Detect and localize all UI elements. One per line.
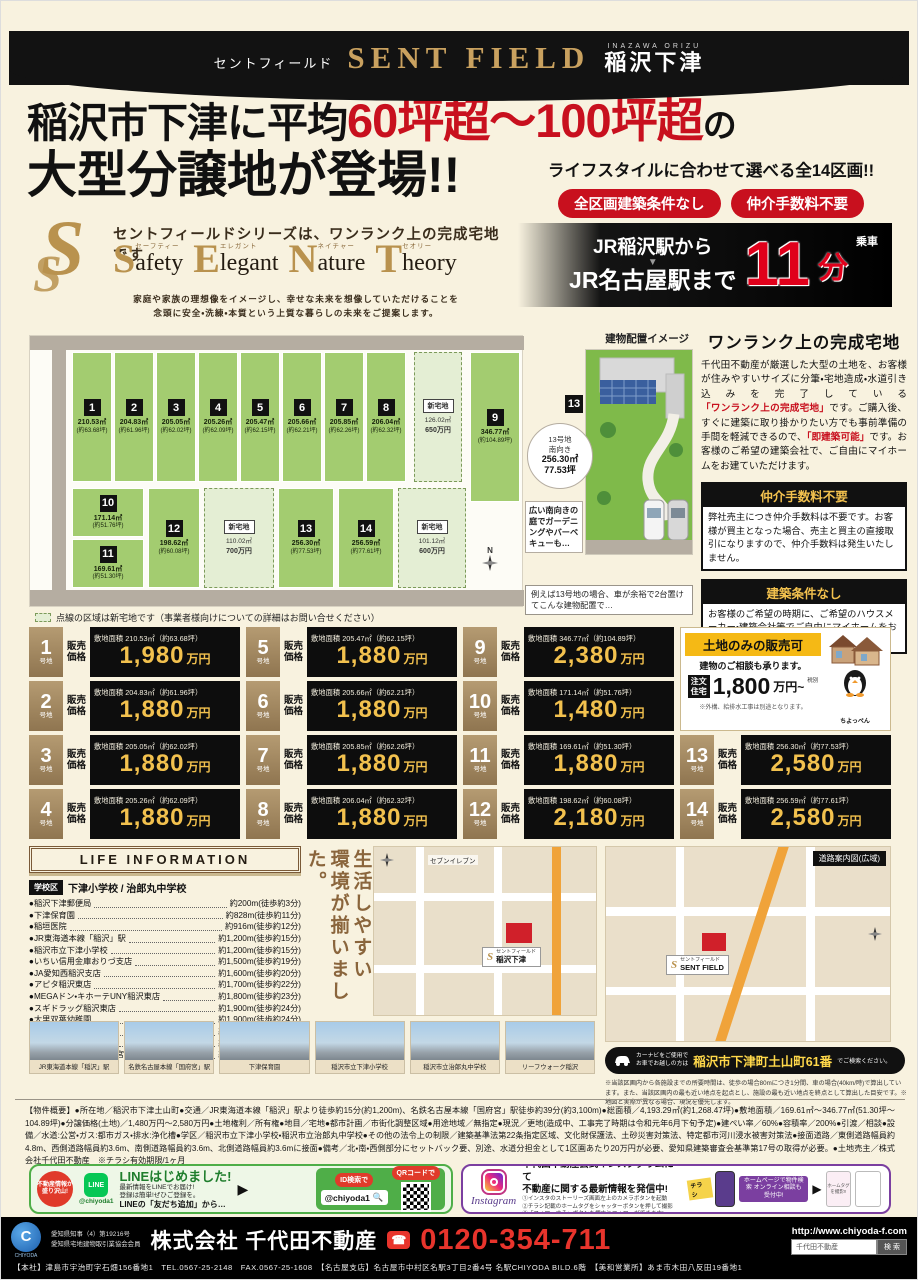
price-unit: 万円 <box>621 707 645 720</box>
site-label: S セントフィールド稲沢下津 <box>482 947 541 967</box>
facility-row: ●JA愛知西稲沢支店約1,600m(徒歩約20分) <box>29 968 301 980</box>
new-lot-price: 700万円 <box>226 546 252 556</box>
map-lot-4: 4205.26㎡(約62.09坪) <box>198 352 238 482</box>
poi-seven-eleven: セブンイレブン <box>428 855 478 865</box>
sale-price-label: 販売価格 <box>497 789 524 839</box>
facility-distance: 約828m(徒歩約11分) <box>226 910 301 922</box>
facility-row: ●稲沢下津郵便局約200m(徒歩約3分) <box>29 898 301 910</box>
price-cell-lot-2: 2号地販売価格敷地面積 204.83㎡（約61.96坪）1,880万円 <box>29 681 240 731</box>
facility-distance: 約200m(徒歩約3分) <box>230 898 301 910</box>
price-black-box: 敷地面積 171.14㎡（約51.76坪）1,480万円 <box>524 681 674 731</box>
divider-line <box>15 1099 905 1100</box>
facility-distance: 約1,800m(徒歩約23分) <box>218 991 301 1003</box>
sale-price-label: 販売価格 <box>714 789 741 839</box>
facility-name: ●スギドラッグ稲沢東店 <box>29 1003 116 1015</box>
brand-description: 家庭や家族の理想像をイメージし、幸せな未来を想像していただけることを 念頭に安全… <box>101 293 491 321</box>
lot-price-line: 1,880万円 <box>94 697 236 723</box>
dotted-leader <box>111 953 216 954</box>
price-black-box: 敷地面積 256.30㎡（約77.53坪）2,580万円 <box>741 735 891 785</box>
price-unit: 万円 <box>621 815 645 828</box>
lot-area: 198.62㎡ <box>160 540 188 548</box>
new-lot-tag: 新宅地 <box>224 520 255 534</box>
road-bottom <box>30 590 524 606</box>
website-url[interactable]: http://www.chiyoda-f.com <box>792 1226 907 1237</box>
company-name: 株式会社 千代田不動産 <box>150 1225 377 1255</box>
flyer-page: セントフィールド SENT FIELD INAZAWA ORIZU 稲沢下津 稲… <box>0 0 918 1280</box>
price-lot-number: 7号地 <box>246 735 280 785</box>
lot-no: 3 <box>40 746 51 766</box>
price-lot-number: 14号地 <box>680 789 714 839</box>
price-cell-lot-5: 5号地販売価格敷地面積 205.47㎡（約62.15坪）1,880万円 <box>246 627 457 677</box>
road-left <box>52 336 66 604</box>
compass-icon: N <box>482 546 498 571</box>
arrow-right-icon: ▶ <box>812 1182 821 1196</box>
price-unit: 万円 <box>838 761 862 774</box>
lot-number: 10 <box>100 495 117 512</box>
feature-column: ワンランク上の完成宅地 千代田不動産が厳選した大型の土地を、お客様が住みやすいサ… <box>701 329 907 654</box>
price-unit: 万円 <box>404 653 428 666</box>
brand-romaji: INAZAWA ORIZU <box>607 43 701 50</box>
facility-name: ●MEGAドン・キホーテUNY稲沢東店 <box>29 991 160 1003</box>
brand-logo: SENT FIELD <box>347 40 590 76</box>
map-lot-8: 8206.04㎡(約62.32坪) <box>366 352 406 482</box>
sale-price-label: 販売価格 <box>497 627 524 677</box>
facility-row: ●スギドラッグ稲沢東店約1,900m(徒歩約24分) <box>29 1003 301 1015</box>
brand-block: S S セントフィールドシリーズは、ワンランク上の完成宅地です Sセーフティーa… <box>31 221 501 321</box>
facility-name: ●いちい信用金庫おりづ支店 <box>29 956 132 968</box>
lot-suffix: 号地 <box>691 767 704 774</box>
illustration-caption: 建物配置イメージ <box>525 331 695 346</box>
price-black-box: 敷地面積 205.47㎡（約62.15坪）1,880万円 <box>307 627 457 677</box>
lot-tsubo: (約60.08坪) <box>158 549 189 556</box>
price-lot-number: 5号地 <box>246 627 280 677</box>
map-lot-11: 11169.61㎡(約51.30坪) <box>72 539 144 588</box>
phone-number[interactable]: 0120-354-711 <box>420 1224 611 1257</box>
new-lot-price: 600万円 <box>419 546 445 556</box>
lot-suffix: 号地 <box>40 767 53 774</box>
lot-no: 8 <box>257 800 268 820</box>
license-info: 愛知県知事（4）第19216号 愛知県宅地建物取引業協会会員 <box>51 1230 140 1249</box>
sale-price-label: 販売価格 <box>280 627 307 677</box>
lot-suffix: 号地 <box>257 659 270 666</box>
lot-area: 205.05㎡ <box>162 419 190 427</box>
lot-suffix: 号地 <box>40 713 53 720</box>
lot-no: 2 <box>40 692 51 712</box>
lot-price-line: 1,880万円 <box>528 751 670 777</box>
header-banner: セントフィールド SENT FIELD INAZAWA ORIZU 稲沢下津 <box>9 31 909 85</box>
photo-strip: JR東海道本線「稲沢」駅名鉄名古屋本線「国府宮」駅下津保育園稲沢市立下津小学校稲… <box>29 1021 595 1074</box>
land-only-note: ※外構、給排水工事は別途となります。 <box>685 702 821 711</box>
search-widget: 千代田不動産 検 索 <box>791 1239 907 1255</box>
price-black-box: 敷地面積 169.61㎡（約51.30坪）1,880万円 <box>524 735 674 785</box>
price-unit: 万円 <box>838 815 862 828</box>
facility-row: ●アピタ稲沢東店約1,700m(徒歩約22分) <box>29 979 301 991</box>
lot-area: 171.14㎡ <box>94 515 122 523</box>
price-cell-lot-4: 4号地販売価格敷地面積 205.26㎡（約62.09坪）1,880万円 <box>29 789 240 839</box>
dotted-leader <box>163 1000 215 1001</box>
price-cell-lot-6: 6号地販売価格敷地面積 205.66㎡（約62.21坪）1,880万円 <box>246 681 457 731</box>
lot-no: 5 <box>257 638 268 658</box>
lot-area: 205.26㎡ <box>204 419 232 427</box>
dotted-leader <box>129 942 215 943</box>
lot-price-line: 1,480万円 <box>528 697 670 723</box>
price-lot-number: 6号地 <box>246 681 280 731</box>
facility-photo: 稲沢市立下津小学校 <box>315 1021 405 1074</box>
lot-tsubo: (約62.15坪) <box>244 428 275 435</box>
line-title: LINEはじめました! <box>120 1169 232 1185</box>
price-value: 1,880 <box>119 697 184 723</box>
lot-no: 13 <box>686 746 708 766</box>
mascot-name: ちよっぺん <box>840 716 870 725</box>
line-qr-badge: QRコードで <box>392 1166 441 1180</box>
arrow-right-icon: ▶ <box>237 1181 248 1198</box>
facility-distance: 約1,500m(徒歩約19分) <box>218 956 301 968</box>
sale-price-label: 販売価格 <box>63 735 90 785</box>
price-cell-lot-8: 8号地販売価格敷地面積 206.04㎡（約62.32坪）1,880万円 <box>246 789 457 839</box>
example-note: 例えば13号地の場合、車が余裕で2台置けてこんな建物配置で… <box>525 585 693 615</box>
facility-name: ●下津保育園 <box>29 910 75 922</box>
facility-distance: 約1,900m(徒歩約24分) <box>218 1003 301 1015</box>
price-unit: 万円 <box>404 707 428 720</box>
insta-card-2 <box>855 1171 881 1207</box>
no-conditions-title: 建築条件なし <box>703 581 905 604</box>
price-value: 2,580 <box>770 751 835 777</box>
price-value: 1,880 <box>336 751 401 777</box>
lot-tsubo: (約51.30坪) <box>92 574 123 581</box>
sale-price-label: 販売価格 <box>497 681 524 731</box>
instagram-icon[interactable] <box>483 1171 505 1193</box>
brand-area: 稲沢下津 <box>604 52 704 74</box>
land-only-sub: 建物のご相談も承ります。 <box>685 659 821 672</box>
instagram-wordmark: Instagram <box>471 1195 516 1207</box>
lot-price-line: 1,880万円 <box>94 805 236 831</box>
lot-price-line: 2,580万円 <box>745 751 887 777</box>
price-value: 1,880 <box>336 805 401 831</box>
map-lot-3: 3205.05㎡(約62.02坪) <box>156 352 196 482</box>
price-unit: 万円 <box>187 815 211 828</box>
lot-tsubo: (約62.21坪) <box>286 428 317 435</box>
tax-note: 税別 <box>807 676 818 684</box>
qr-code[interactable] <box>401 1182 431 1212</box>
facility-name: ●アピタ稲沢東店 <box>29 979 91 991</box>
map-lot-7: 7205.85㎡(約62.26坪) <box>324 352 364 482</box>
sale-price-label: 販売価格 <box>280 789 307 839</box>
facility-distance: 約1,200m(徒歩約15分) <box>218 945 301 957</box>
lot-area: 206.04㎡ <box>372 419 400 427</box>
price-column-2: 5号地販売価格敷地面積 205.47㎡（約62.15坪）1,880万円6号地販売… <box>246 627 457 839</box>
new-lot-area: 101.12㎡ <box>419 538 445 546</box>
lot-number: 12 <box>166 520 183 537</box>
down-arrow-icon: ▼ <box>648 259 658 267</box>
lot-number: 1 <box>84 399 101 416</box>
photo-image <box>316 1022 404 1060</box>
wide-site-label: S セントフィールドSENT FIELD <box>666 955 729 975</box>
lot-number: 9 <box>487 409 504 426</box>
photo-caption: リーフウォーク稲沢 <box>506 1060 594 1073</box>
price-value: 1,480 <box>553 697 618 723</box>
phone-mockup <box>715 1171 735 1207</box>
search-input[interactable]: 千代田不動産 <box>791 1239 877 1255</box>
instagram-promo: Instagram 千代田不動産公式インスタグラムにて 不動産に関する最新情報を… <box>461 1164 891 1214</box>
map-lot-5: 5205.47㎡(約62.15坪) <box>240 352 280 482</box>
lot-price-line: 1,880万円 <box>94 751 236 777</box>
access-unit: 分 <box>818 243 848 287</box>
footer: C CHIYODA 愛知県知事（4）第19216号 愛知県宅地建物取引業協会会員… <box>1 1217 918 1280</box>
car-navi-bar: カーナビをご使用でお車でお越しの方は 稲沢市下津町土山町61番 でご検索ください… <box>605 1047 905 1074</box>
price-unit: 万円 <box>187 707 211 720</box>
land-only-box: 土地のみの販売可 建物のご相談も承ります。 注文住宅 1,800 万円~ 税別 … <box>680 627 891 731</box>
line-promo: 不動産情報が盛り沢山! LINE @chiyoda1 LINEはじめました! 最… <box>29 1164 453 1214</box>
price-cell-lot-1: 1号地販売価格敷地面積 210.53㎡（約63.68坪）1,980万円 <box>29 627 240 677</box>
facility-row: ●下津保育園約828m(徒歩約11分) <box>29 910 301 922</box>
facility-name: ●JA愛知西稲沢支店 <box>29 968 101 980</box>
lot-price-line: 1,880万円 <box>311 805 453 831</box>
access-banner: JR稲沢駅から ▼ JR名古屋駅まで 11 分 乗車 <box>518 223 892 307</box>
photo-caption: 名鉄名古屋本線「国府宮」駅 <box>125 1060 213 1073</box>
lot-no: 11 <box>469 746 490 766</box>
headline-post: の <box>703 107 736 145</box>
headline-red: 60坪超～100坪超 <box>347 94 703 147</box>
new-lot-area: 126.02㎡ <box>425 417 451 425</box>
lot-suffix: 号地 <box>40 821 53 828</box>
life-information-header: LIFE INFORMATION <box>29 846 301 873</box>
lot-number: 7 <box>336 399 353 416</box>
lot-no: 10 <box>469 692 491 712</box>
facility-photo: 名鉄名古屋本線「国府宮」駅 <box>124 1021 214 1074</box>
lot-tsubo: (約77.61坪) <box>350 549 381 556</box>
map-lot-6: 6205.66㎡(約62.21坪) <box>282 352 322 482</box>
lot-no: 7 <box>257 746 268 766</box>
price-column-1: 1号地販売価格敷地面積 210.53㎡（約63.68坪）1,980万円2号地販売… <box>29 627 240 839</box>
photo-caption: JR東海道本線「稲沢」駅 <box>30 1060 118 1073</box>
wide-site-marker <box>702 933 726 951</box>
map-legend: 点線の区域は新宅地です（事業者様向けについての詳細はお問い合せください） <box>35 611 380 624</box>
lot-tsubo: (約63.68坪) <box>76 428 107 435</box>
lot-price-line: 2,380万円 <box>528 643 670 669</box>
flyer-tag: チラシ <box>686 1177 712 1200</box>
branch-addresses: 【本社】津島市宇治町字石畑156番地1 TEL.0567-25-2148 FAX… <box>1 1259 918 1276</box>
facility-name: ●稲沢下津郵便局 <box>29 898 91 910</box>
lot-area: 256.30㎡ <box>292 540 320 548</box>
lot-map: N 1210.53㎡(約63.68坪)2204.83㎡(約61.96坪)3205… <box>29 335 523 607</box>
lot-area: 205.47㎡ <box>246 419 274 427</box>
price-lot-number: 11号地 <box>463 735 497 785</box>
line-icon[interactable]: LINE <box>84 1173 108 1197</box>
photo-caption: 下津保育園 <box>220 1060 308 1073</box>
badge-no-building-conditions: 全区画建築条件なし <box>558 189 721 218</box>
no-brokerage-title: 仲介手数料不要 <box>703 484 905 507</box>
new-lot-price: 650万円 <box>425 425 451 435</box>
facility-name: ●JR東海道本線「稲沢」駅 <box>29 933 126 945</box>
price-black-box: 敷地面積 205.66㎡（約62.21坪）1,880万円 <box>307 681 457 731</box>
lot-tsubo: (約62.26坪) <box>328 428 359 435</box>
lot-no: 1 <box>40 638 51 658</box>
lot-price-line: 1,880万円 <box>311 751 453 777</box>
dotted-leader <box>119 1011 215 1012</box>
price-value: 2,580 <box>770 805 835 831</box>
facility-photo: 下津保育園 <box>219 1021 309 1074</box>
headline-line1: 稲沢市下津に平均60坪超～100坪超の <box>27 95 895 147</box>
facility-row: ●稲垣医院約916m(徒歩約12分) <box>29 921 301 933</box>
new-lot-swatch <box>35 613 51 622</box>
photo-caption: 稲沢市立下津小学校 <box>316 1060 404 1073</box>
sale-price-label: 販売価格 <box>63 789 90 839</box>
line-id-value[interactable]: @chiyoda1🔍 <box>321 1190 388 1205</box>
price-lot-number: 4号地 <box>29 789 63 839</box>
lot-area: 205.66㎡ <box>288 419 316 427</box>
new-lot-tag: 新宅地 <box>423 399 454 413</box>
price-lot-number: 3号地 <box>29 735 63 785</box>
new-lot-tag: 新宅地 <box>417 520 448 534</box>
dotted-leader <box>104 976 215 977</box>
feature-paragraph: 千代田不動産が厳選した大型の土地を、お客様が住みやすいサイズに分筆・宅地造成・水… <box>701 359 907 474</box>
facility-photo: 稲沢市立治郎丸中学校 <box>410 1021 500 1074</box>
garden-bubble-text: 広い南向きの庭でガーデニングやバーベキューも… <box>525 501 583 553</box>
lot-number: 3 <box>168 399 185 416</box>
dotted-leader <box>135 965 215 966</box>
photo-image <box>506 1022 594 1060</box>
price-black-box: 敷地面積 198.62㎡（約60.08坪）2,180万円 <box>524 789 674 839</box>
badge-no-brokerage-fee: 仲介手数料不要 <box>731 189 865 218</box>
lot-no: 9 <box>474 638 485 658</box>
map-lot-10: 10171.14㎡(約51.76坪) <box>72 488 144 537</box>
lot13-number-badge: 13 <box>565 395 583 413</box>
price-black-box: 敷地面積 205.85㎡（約62.26坪）1,880万円 <box>307 735 457 785</box>
navi-post-text: でご検索ください。 <box>837 1056 891 1065</box>
facility-distance: 約916m(徒歩約12分) <box>225 921 301 933</box>
car-icon <box>613 1055 631 1067</box>
map-new-lot-3: 新宅地101.12㎡600万円 <box>398 488 466 588</box>
price-unit: 万円 <box>187 653 211 666</box>
lot-suffix: 号地 <box>257 713 270 720</box>
lot13-callout: 13号地 南向き 256.30㎡ 77.53坪 <box>527 423 593 489</box>
price-black-box: 敷地面積 346.77㎡（約104.89坪）2,380万円 <box>524 627 674 677</box>
dotted-leader <box>70 930 222 931</box>
site-marker <box>506 923 532 943</box>
facility-photo: リーフウォーク稲沢 <box>505 1021 595 1074</box>
wide-map-badge: 道路案内図(広域) <box>813 851 886 866</box>
local-area-map: セブンイレブン S セントフィールド稲沢下津 <box>373 846 597 1016</box>
search-icon: 🔍 <box>373 1192 384 1203</box>
price-black-box: 敷地面積 256.59㎡（約77.61坪）2,580万円 <box>741 789 891 839</box>
price-grid: 1号地販売価格敷地面積 210.53㎡（約63.68坪）1,980万円2号地販売… <box>29 627 891 839</box>
facility-distance: 約1,200m(徒歩約15分) <box>218 933 301 945</box>
property-outline: 【物件概要】●所在地／稲沢市下津土山町●交通／JR東海道本線「稲沢」駅より徒歩約… <box>25 1105 895 1168</box>
school-district-value: 下津小学校 / 治郎丸中学校 <box>68 880 186 895</box>
map-lot-2: 2204.83㎡(約61.96坪) <box>114 352 154 482</box>
house-and-penguin-icon <box>827 633 883 697</box>
price-unit: 万円 <box>621 653 645 666</box>
price-lot-number: 2号地 <box>29 681 63 731</box>
lot-number: 13 <box>298 520 315 537</box>
no-brokerage-body: 弊社売主につき仲介手数料は不要です。お客様が買主となった場合、売主と買主の直接取… <box>703 507 905 569</box>
school-district-badge: 学校区 <box>29 880 63 895</box>
photo-caption: 稲沢市立治郎丸中学校 <box>411 1060 499 1073</box>
lot-tsubo: (約77.53坪) <box>290 549 321 556</box>
lot-suffix: 号地 <box>474 821 487 828</box>
lot-area: 204.83㎡ <box>120 419 148 427</box>
lot-price-line: 2,180万円 <box>528 805 670 831</box>
price-column-4: 土地のみの販売可 建物のご相談も承ります。 注文住宅 1,800 万円~ 税別 … <box>680 627 891 839</box>
price-unit: 万円 <box>404 761 428 774</box>
line-search-area: ID検索で @chiyoda1🔍 QRコードで <box>316 1168 445 1210</box>
road-top <box>30 336 524 350</box>
lot-tsubo: (約62.02坪) <box>160 428 191 435</box>
map-lot-13: 13256.30㎡(約77.53坪) <box>278 488 334 588</box>
price-value: 1,880 <box>336 697 401 723</box>
lot-price-line: 1,880万円 <box>311 697 453 723</box>
lot-suffix: 号地 <box>257 821 270 828</box>
price-black-box: 敷地面積 210.53㎡（約63.68坪）1,980万円 <box>90 627 240 677</box>
price-lot-number: 12号地 <box>463 789 497 839</box>
lot-suffix: 号地 <box>257 767 270 774</box>
lot-suffix: 号地 <box>474 767 487 774</box>
photo-image <box>30 1022 118 1060</box>
custom-home-badge: 注文住宅 <box>688 675 710 697</box>
price-black-box: 敷地面積 204.83㎡（約61.96坪）1,880万円 <box>90 681 240 731</box>
map-lot-14: 14256.59㎡(約77.61坪) <box>338 488 394 588</box>
lot-number: 6 <box>294 399 311 416</box>
sale-price-label: 販売価格 <box>714 735 741 785</box>
lot-suffix: 号地 <box>474 713 487 720</box>
price-column-3: 9号地販売価格敷地面積 346.77㎡（約104.89坪）2,380万円10号地… <box>463 627 674 839</box>
price-lot-number: 1号地 <box>29 627 63 677</box>
lot-tsubo: (約51.76坪) <box>92 523 123 530</box>
map-new-lot-1: 新宅地126.02㎡650万円 <box>414 352 462 482</box>
facility-photo: JR東海道本線「稲沢」駅 <box>29 1021 119 1074</box>
price-lot-number: 10号地 <box>463 681 497 731</box>
lot-number: 8 <box>378 399 395 416</box>
freedial-icon: ☎ <box>387 1231 410 1249</box>
lot-area: 169.61㎡ <box>94 566 122 574</box>
facility-row: ●いちい信用金庫おりづ支店約1,500m(徒歩約19分) <box>29 956 301 968</box>
search-button[interactable]: 検 索 <box>877 1239 907 1255</box>
dotted-leader <box>94 907 226 908</box>
facility-name: ●稲垣医院 <box>29 921 67 933</box>
access-from: JR稲沢駅から <box>593 237 712 259</box>
lot-tsubo: (約61.96坪) <box>118 428 149 435</box>
lot-area: 346.77㎡ <box>481 429 509 437</box>
lot-number: 14 <box>358 520 375 537</box>
price-cell-lot-14: 14号地販売価格敷地面積 256.59㎡（約77.61坪）2,580万円 <box>680 789 891 839</box>
sale-price-label: 販売価格 <box>280 681 307 731</box>
facility-row: ●MEGAドン・キホーテUNY稲沢東店約1,800m(徒歩約23分) <box>29 991 301 1003</box>
lot-no: 4 <box>40 800 51 820</box>
map-lot-12: 12198.62㎡(約60.08坪) <box>148 488 200 588</box>
feature-title: ワンランク上の完成宅地 <box>701 329 907 353</box>
sale-price-label: 販売価格 <box>63 681 90 731</box>
headline-sub: ライフスタイルに合わせて選べる全14区画!! <box>525 157 897 181</box>
price-black-box: 敷地面積 205.05㎡（約62.02坪）1,880万円 <box>90 735 240 785</box>
price-cell-lot-7: 7号地販売価格敷地面積 205.85㎡（約62.26坪）1,880万円 <box>246 735 457 785</box>
lot-no: 12 <box>469 800 491 820</box>
price-value: 1,880 <box>336 643 401 669</box>
lot-no: 6 <box>257 692 268 712</box>
dotted-leader <box>94 988 215 989</box>
house-illustration <box>585 349 693 555</box>
line-burst-badge: 不動産情報が盛り沢山! <box>37 1171 73 1207</box>
price-value: 2,180 <box>553 805 618 831</box>
sale-price-label: 販売価格 <box>497 735 524 785</box>
map-lot-1: 1210.53㎡(約63.68坪) <box>72 352 112 482</box>
lot-no: 14 <box>686 800 708 820</box>
facility-distance: 約1,600m(徒歩約20分) <box>218 968 301 980</box>
lot-suffix: 号地 <box>474 659 487 666</box>
headline-pre: 稲沢市下津に平均 <box>27 100 347 146</box>
lot-number: 5 <box>252 399 269 416</box>
lot-area: 210.53㎡ <box>78 419 106 427</box>
photo-image <box>125 1022 213 1060</box>
